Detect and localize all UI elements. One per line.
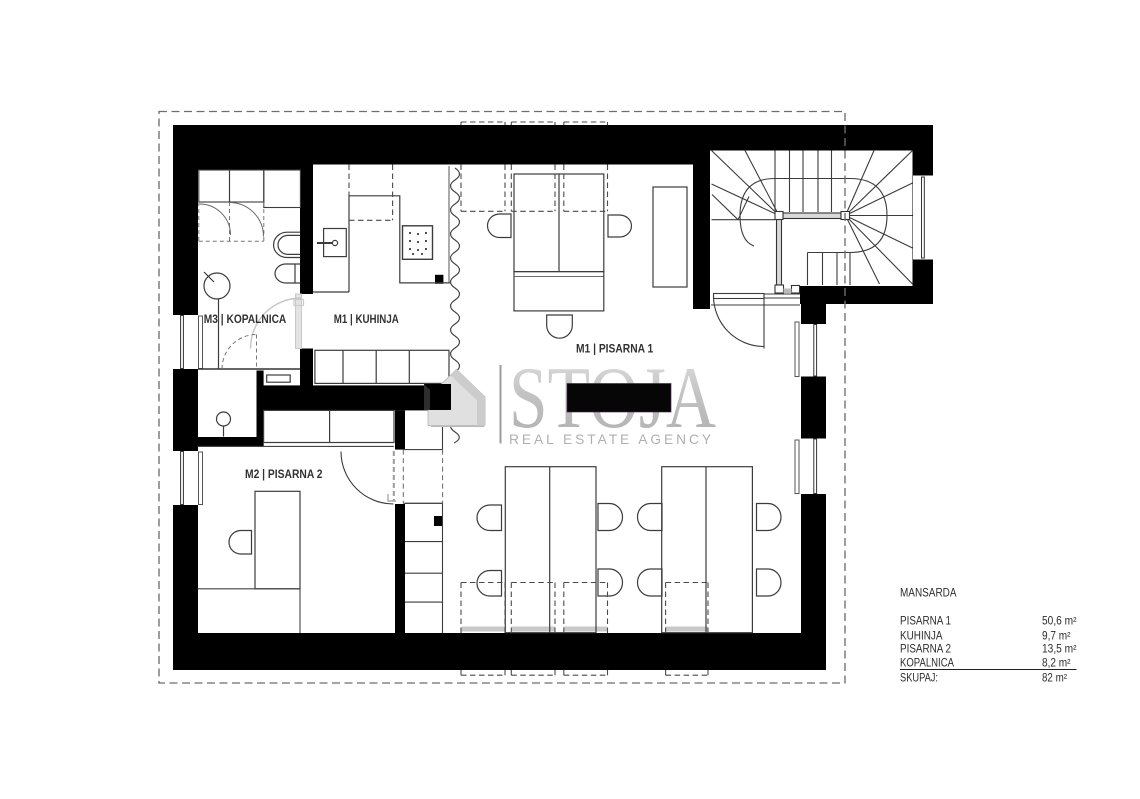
svg-text:REAL ESTATE AGENCY: REAL ESTATE AGENCY (509, 431, 714, 447)
svg-text:M1 | KUHINJA: M1 | KUHINJA (334, 312, 399, 326)
svg-text:8,2 m²: 8,2 m² (1042, 658, 1071, 670)
svg-text:9,7 m²: 9,7 m² (1042, 631, 1071, 643)
svg-text:M3 | KOPALNICA: M3 | KOPALNICA (204, 312, 287, 326)
svg-text:13,5 m²: 13,5 m² (1042, 644, 1077, 656)
svg-text:PISARNA 2: PISARNA 2 (900, 644, 951, 656)
svg-text:50,6 m²: 50,6 m² (1042, 616, 1077, 628)
svg-text:MANSARDA: MANSARDA (900, 588, 957, 600)
svg-text:KOPALNICA: KOPALNICA (900, 658, 954, 670)
svg-text:KUHINJA: KUHINJA (900, 631, 943, 643)
svg-text:PISARNA 1: PISARNA 1 (900, 616, 951, 628)
svg-text:M1 | PISARNA 1: M1 | PISARNA 1 (576, 342, 653, 356)
svg-text:M2 | PISARNA 2: M2 | PISARNA 2 (245, 467, 323, 481)
svg-text:82 m²: 82 m² (1042, 673, 1067, 685)
svg-text:SKUPAJ:: SKUPAJ: (900, 673, 938, 685)
